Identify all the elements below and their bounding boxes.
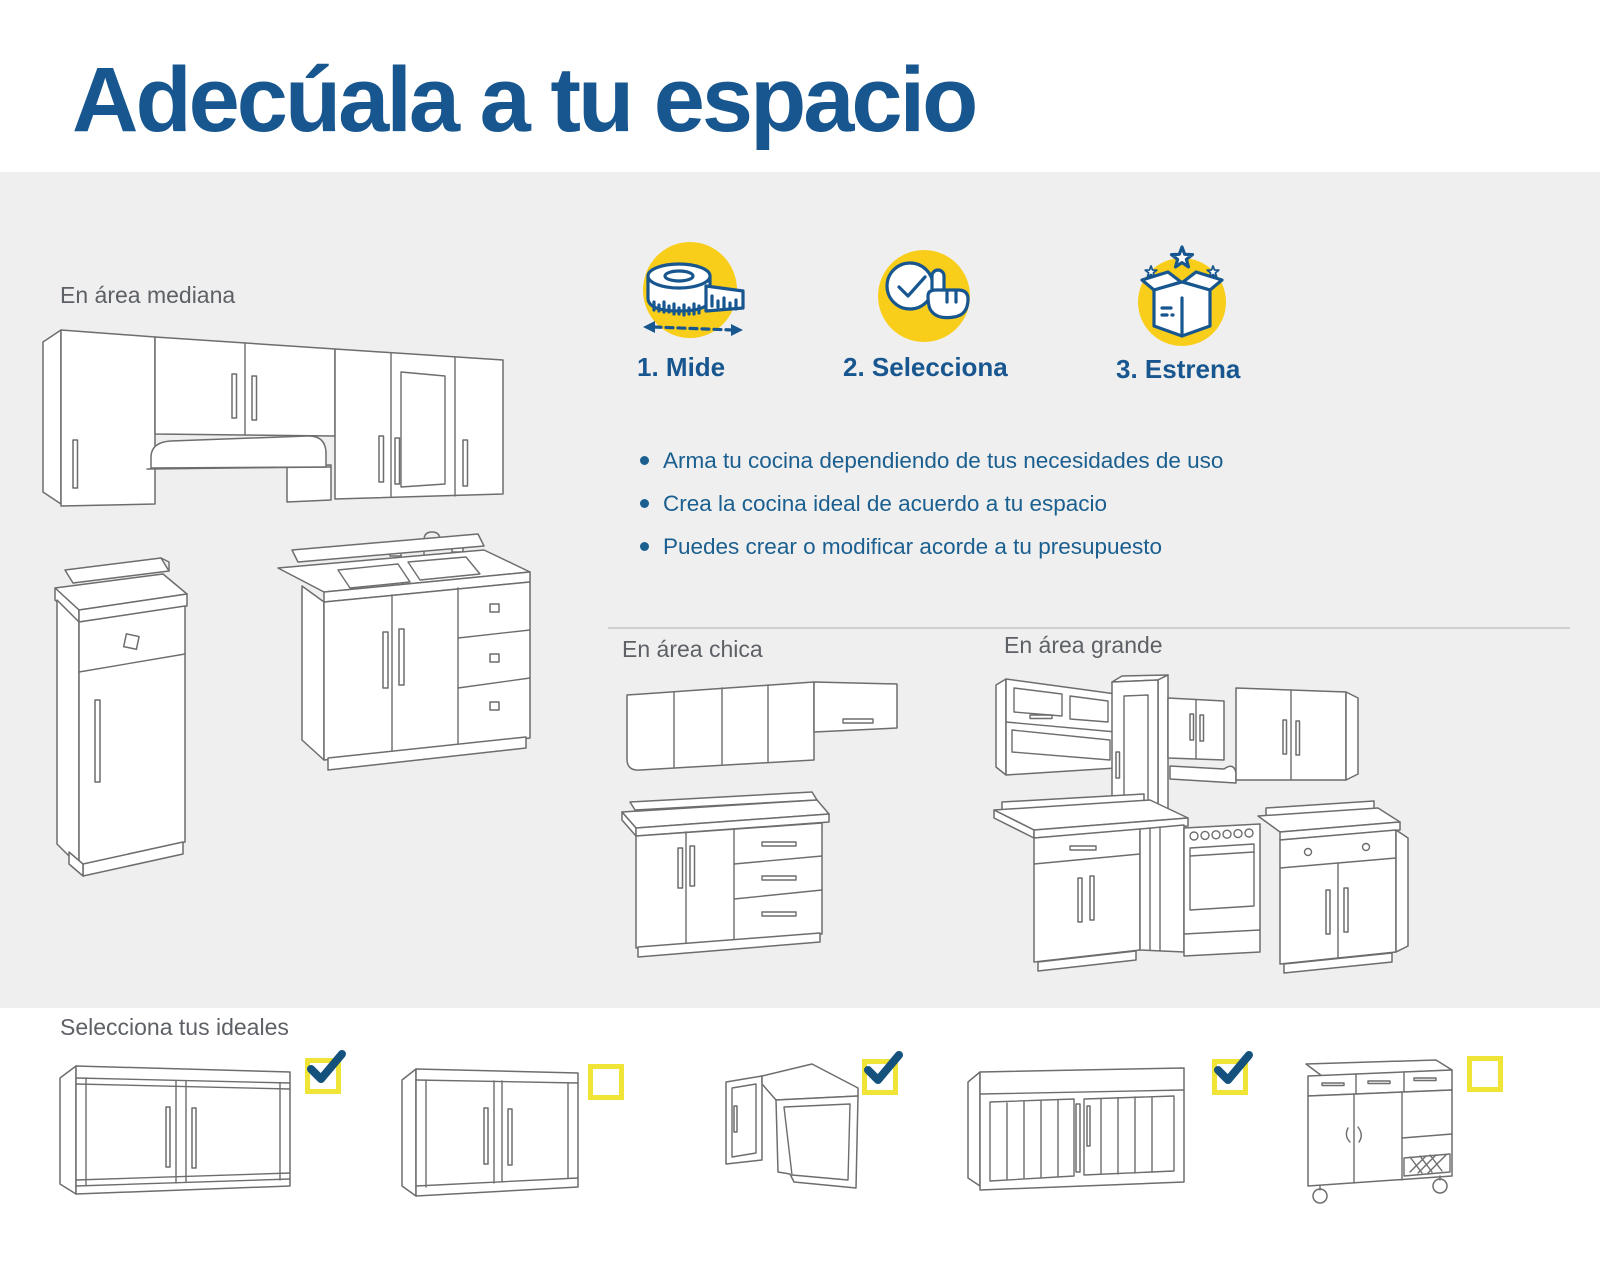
measuring-tape-icon <box>628 240 758 350</box>
check-icon <box>1211 1049 1255 1089</box>
thumbnail-base-cabinet-open-shelf <box>1292 1050 1462 1215</box>
benefits-list: Arma tu cocina dependiendo de tus necesi… <box>637 448 1223 577</box>
medium-area-drawing-sink-cabinet <box>262 526 562 771</box>
select-check-hand-icon <box>866 244 986 354</box>
section-divider <box>608 627 1570 629</box>
benefit-item: Arma tu cocina dependiendo de tus necesi… <box>637 448 1223 474</box>
infographic-page: Adecúala a tu espacio En área mediana En… <box>0 0 1600 1280</box>
checkbox-item-2[interactable] <box>588 1064 624 1100</box>
small-area-label: En área chica <box>622 636 763 663</box>
small-area-drawing-base-cabinet <box>616 786 831 964</box>
step-label-mide: 1. Mide <box>637 352 725 383</box>
checkbox-item-4[interactable] <box>1212 1059 1248 1095</box>
check-icon <box>304 1048 348 1088</box>
medium-area-label: En área mediana <box>60 282 235 309</box>
step-label-estrena: 3. Estrena <box>1116 354 1240 385</box>
small-area-drawing-wall-cabinets <box>610 666 910 778</box>
large-area-drawing-corner-kitchen <box>978 652 1428 976</box>
checkbox-item-1[interactable] <box>305 1058 341 1094</box>
step-label-selecciona: 2. Selecciona <box>843 352 1008 383</box>
thumbnail-wall-cabinet-two-door <box>396 1056 586 1214</box>
checkbox-item-3[interactable] <box>862 1059 898 1095</box>
page-title: Adecúala a tu espacio <box>72 48 975 153</box>
medium-area-drawing-base-cabinet <box>45 550 205 885</box>
medium-area-drawing-wall-cabinets <box>35 316 535 521</box>
thumbnail-wall-cabinet-wide <box>52 1052 297 1212</box>
benefit-item: Puedes crear o modificar acorde a tu pre… <box>637 534 1223 560</box>
thumbnail-slatted-door-cabinet <box>962 1054 1192 1212</box>
selector-label: Selecciona tus ideales <box>60 1014 289 1041</box>
benefit-item: Crea la cocina ideal de acuerdo a tu esp… <box>637 491 1223 517</box>
thumbnail-corner-wall-cabinet <box>716 1054 866 1204</box>
checkbox-item-5[interactable] <box>1467 1056 1503 1092</box>
gift-box-stars-icon <box>1126 242 1238 354</box>
check-icon <box>861 1049 905 1089</box>
